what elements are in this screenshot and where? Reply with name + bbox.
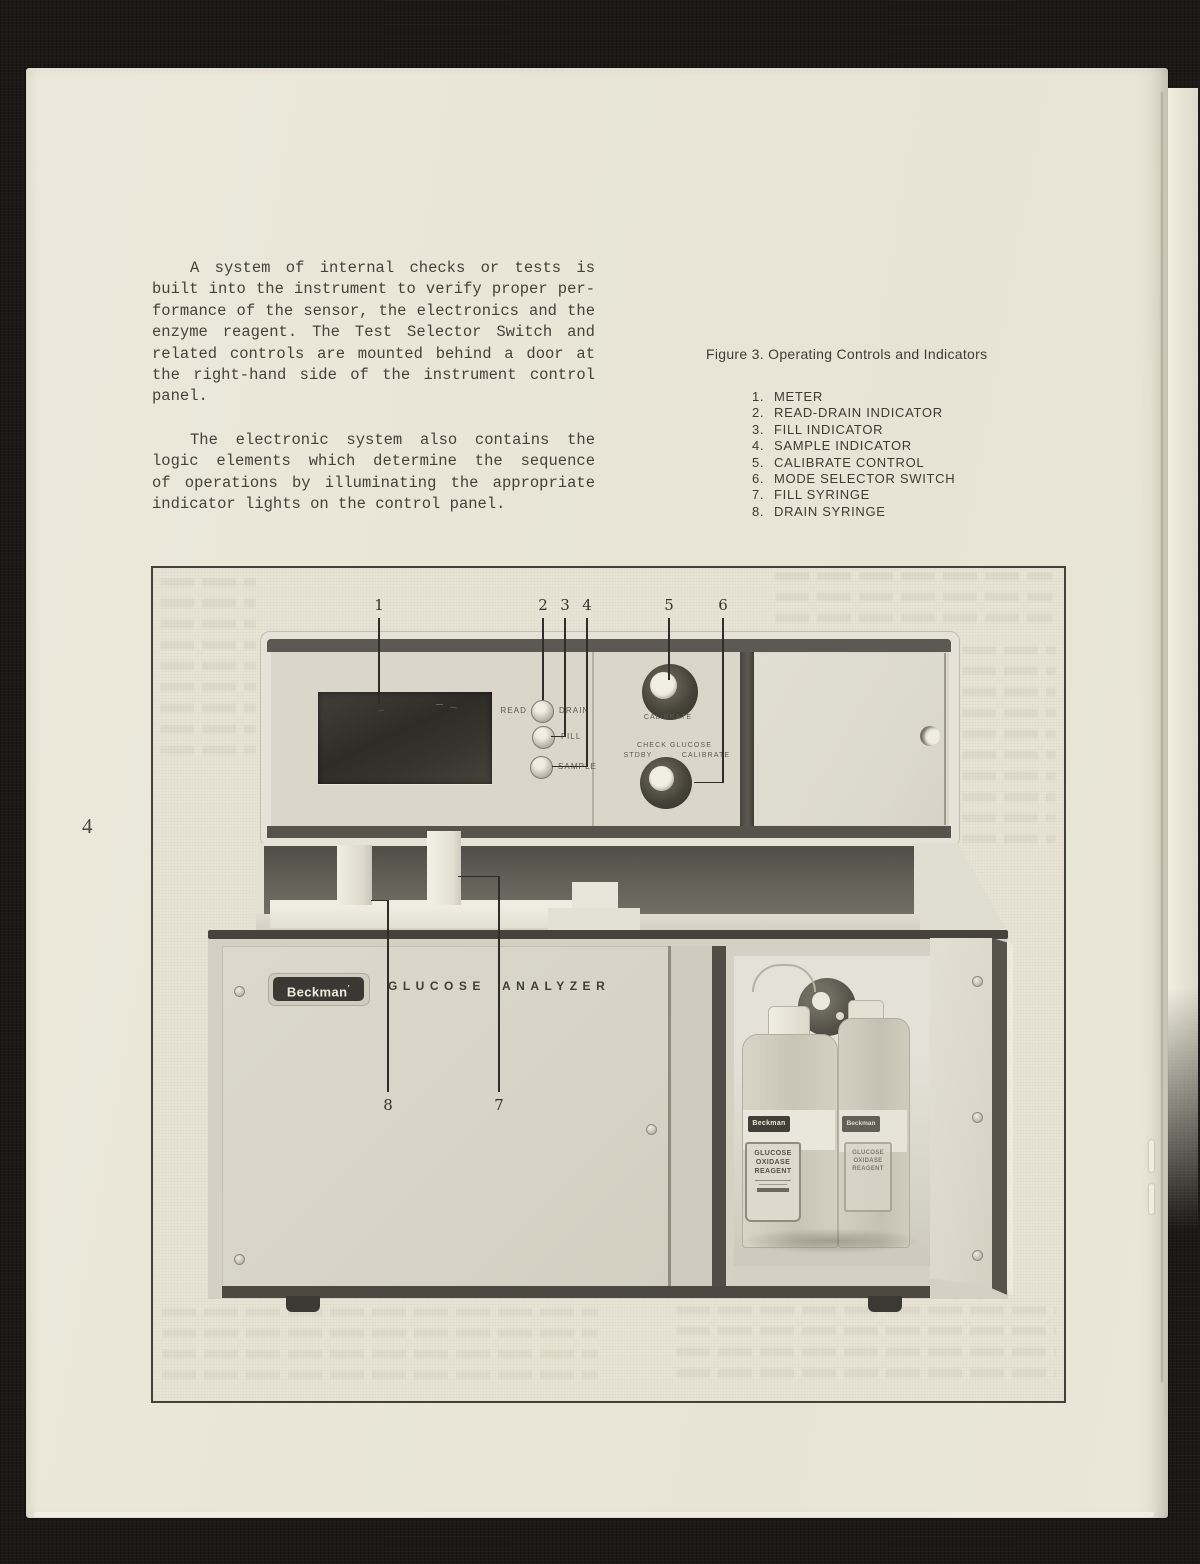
legend-number: 3.	[752, 422, 774, 438]
label-rule	[755, 1180, 791, 1181]
mode-calibrate-label: CALIBRATE	[680, 752, 732, 759]
panel-seam	[592, 652, 594, 828]
bottle-label-line: GLUCOSE	[846, 1149, 890, 1157]
bottle-brand-chip: Beckman	[748, 1116, 790, 1132]
beckman-badge-text: Beckman	[287, 984, 348, 999]
legend-number: 8.	[752, 504, 774, 520]
jamb-dark-strip	[712, 946, 726, 1286]
legend-item: 7.FILL SYRINGE	[752, 487, 982, 503]
ghost-text	[160, 578, 256, 764]
read-drain-indicator-light	[531, 700, 554, 723]
body-line: of operations by illuminating the approp…	[152, 473, 595, 494]
bottle-label-line: REAGENT	[846, 1165, 890, 1173]
product-word-glucose: GLUCOSE	[388, 979, 486, 993]
cabinet-foot	[868, 1296, 902, 1312]
callout-line-5	[668, 618, 670, 680]
fill-syringe	[427, 831, 461, 905]
body-line: panel.	[152, 386, 595, 407]
fill-indicator-light	[532, 726, 555, 749]
center-jamb	[671, 946, 712, 1286]
label-rule	[757, 1188, 789, 1192]
body-line: related controls are mounted behind a do…	[152, 344, 595, 365]
cabinet-foot	[286, 1296, 320, 1312]
callout-line-8	[387, 900, 389, 1092]
panel-door	[754, 653, 946, 825]
legend-label: MODE SELECTOR SWITCH	[774, 471, 955, 487]
legend-number: 6.	[752, 471, 774, 487]
body-line: formance of the sensor, the electronics …	[152, 301, 595, 322]
callout-line-4	[586, 618, 588, 767]
figure-caption: Figure 3. Operating Controls and Indicat…	[706, 346, 1036, 362]
control-unit-bottom-band	[267, 826, 951, 838]
legend-label: FILL SYRINGE	[774, 487, 870, 503]
body-text: A system of internal checks or tests is …	[152, 258, 595, 515]
bottle-shadow	[740, 1228, 920, 1254]
bottle-label-line: OXIDASE	[846, 1157, 890, 1165]
legend-number: 5.	[752, 455, 774, 471]
legend-label: METER	[774, 389, 823, 405]
body-line: A system of internal checks or tests is	[152, 258, 595, 279]
legend-number: 2.	[752, 405, 774, 421]
product-word-analyzer: ANALYZER	[502, 979, 610, 993]
read-label: READ	[493, 706, 527, 715]
screw	[234, 1254, 245, 1265]
legend-item: 4.SAMPLE INDICATOR	[752, 438, 982, 454]
bottle-label-line: OXIDASE	[747, 1158, 799, 1167]
figure-legend: 1.METER 2.READ-DRAIN INDICATOR 3.FILL IN…	[752, 389, 982, 520]
legend-label: DRAIN SYRINGE	[774, 504, 886, 520]
body-line: logic elements which determine the seque…	[152, 451, 595, 472]
adjacent-page-edge	[1168, 88, 1198, 1243]
cabinet-top-edge	[208, 930, 1008, 939]
callout-line-7	[498, 876, 500, 1092]
page-bottom-edge	[34, 1512, 1154, 1517]
legend-item: 6.MODE SELECTOR SWITCH	[752, 471, 982, 487]
legend-number: 1.	[752, 389, 774, 405]
meter-window	[318, 692, 492, 784]
callout-line-8	[371, 900, 388, 902]
legend-number: 4.	[752, 438, 774, 454]
control-unit-top-band	[267, 639, 951, 652]
reagent-compartment: Beckman GLUCOSE OXIDASE REAGENT Beckman …	[734, 956, 930, 1266]
scanned-page: A system of internal checks or tests is …	[0, 0, 1200, 1564]
callout-line-4	[552, 766, 587, 768]
bottle-reagent-label: GLUCOSE OXIDASE REAGENT	[844, 1142, 892, 1212]
door-hinge-bump	[972, 1112, 983, 1123]
callout-number-1: 1	[371, 596, 387, 614]
legend-label: FILL INDICATOR	[774, 422, 883, 438]
panel-door-gap	[740, 652, 754, 828]
legend-item: 5.CALIBRATE CONTROL	[752, 455, 982, 471]
body-line: built into the instrument to verify prop…	[152, 279, 595, 300]
callout-number-3: 3	[557, 596, 573, 614]
body-line: The electronic system also contains the	[152, 430, 595, 451]
bottle-reagent-label: GLUCOSE OXIDASE REAGENT	[745, 1142, 801, 1222]
callout-line-3	[551, 736, 565, 738]
callout-number-6: 6	[715, 596, 731, 614]
callout-number-2: 2	[535, 596, 551, 614]
right-door-inner-edge	[992, 938, 1007, 1300]
callout-number-4: 4	[579, 596, 595, 614]
callout-number-7: 7	[491, 1096, 507, 1114]
mode-stdby-label: STDBY	[616, 752, 660, 759]
tubing	[752, 964, 816, 992]
pump-rotor-hub	[812, 992, 830, 1010]
legend-number: 7.	[752, 487, 774, 503]
legend-item: 2.READ-DRAIN INDICATOR	[752, 405, 982, 421]
mode-glucose-label: GLUCOSE	[666, 742, 716, 749]
binding-stitch	[1149, 1184, 1154, 1214]
legend-item: 1.METER	[752, 389, 982, 405]
sample-indicator-light	[530, 756, 553, 779]
drain-syringe	[337, 845, 372, 905]
body-line: enzyme reagent. The Test Selector Switch…	[152, 322, 595, 343]
ghost-text	[676, 1306, 1056, 1390]
pump-rotor-dot	[836, 1012, 844, 1020]
ghost-text	[162, 1308, 598, 1390]
label-rule	[759, 1184, 787, 1185]
door-finger-hole	[920, 726, 940, 746]
meter-scale-mark	[450, 707, 457, 709]
mode-selector-knob-center	[649, 766, 674, 791]
door-hinge-bump	[972, 976, 983, 987]
door-hinge-bump	[972, 1250, 983, 1261]
legend-item: 8.DRAIN SYRINGE	[752, 504, 982, 520]
legend-label: READ-DRAIN INDICATOR	[774, 405, 943, 421]
callout-line-7	[458, 876, 499, 878]
callout-line-6	[722, 618, 724, 783]
bottle-label-line: GLUCOSE	[747, 1149, 799, 1158]
cabinet-bottom-edge	[222, 1286, 930, 1298]
body-line: indicator lights on the control panel.	[152, 494, 595, 515]
screw	[234, 986, 245, 997]
ghost-text	[962, 646, 1056, 846]
callout-number-5: 5	[661, 596, 677, 614]
legend-label: CALIBRATE CONTROL	[774, 455, 924, 471]
callout-line-6	[694, 782, 723, 784]
trademark-mark: ’	[347, 984, 350, 993]
callout-line-2	[542, 618, 544, 700]
callout-line-1	[378, 618, 380, 704]
calibrate-knob-center	[650, 672, 677, 699]
callout-line-3	[564, 618, 566, 737]
jamb-light-strip	[726, 946, 734, 1286]
calibrate-knob-label: CALIBRATE	[633, 714, 703, 721]
meter-scale-mark	[436, 704, 443, 705]
page-crease	[1161, 92, 1163, 1382]
legend-label: SAMPLE INDICATOR	[774, 438, 912, 454]
beckman-badge: Beckman’	[273, 977, 364, 1001]
legend-item: 3.FILL INDICATOR	[752, 422, 982, 438]
binding-stitch	[1149, 1140, 1154, 1172]
ghost-text	[775, 572, 1053, 628]
right-door-outer-edge	[1007, 940, 1013, 1300]
page-number: 4	[82, 814, 93, 839]
callout-number-8: 8	[380, 1096, 396, 1114]
meter-scale-mark	[378, 710, 384, 712]
bottle-label-line: REAGENT	[747, 1167, 799, 1176]
panel-door-edge	[944, 653, 946, 825]
body-line: the right-hand side of the instrument co…	[152, 365, 595, 386]
screw	[646, 1124, 657, 1135]
bottle-brand-chip: Beckman	[842, 1116, 880, 1132]
